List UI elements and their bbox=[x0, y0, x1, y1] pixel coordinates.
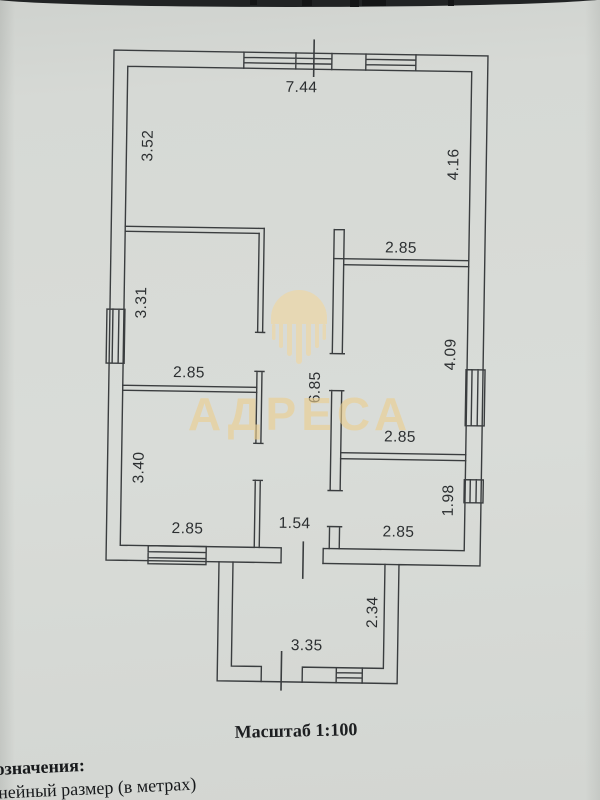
dimension-label: 2.85 bbox=[171, 520, 203, 538]
dimension-label: 4.16 bbox=[445, 148, 463, 180]
dimension-label: 3.35 bbox=[291, 637, 323, 655]
outer-wall-outline bbox=[104, 50, 488, 685]
dimension-label: 3.52 bbox=[139, 130, 157, 162]
dimension-label: 1.98 bbox=[440, 484, 458, 516]
dimension-label: 3.31 bbox=[133, 287, 151, 319]
dimension-label: 2.85 bbox=[173, 364, 205, 382]
partition-right-room-top bbox=[334, 259, 469, 267]
partition-big-room-left bbox=[125, 226, 264, 233]
dimension-label: 2.85 bbox=[384, 428, 416, 446]
floor-plan-drawing bbox=[0, 0, 600, 800]
inner-wall-outline bbox=[120, 66, 472, 565]
dimension-label: 2.85 bbox=[385, 239, 417, 257]
scanned-floor-plan-page: 7.44 3.52 4.16 2.85 3.31 2.85 6.85 4.09 … bbox=[0, 0, 600, 800]
dimension-label: 6.85 bbox=[307, 371, 325, 403]
window-symbol-top-left bbox=[244, 52, 332, 69]
dimension-label: 2.85 bbox=[382, 523, 414, 541]
dimension-label: 2.34 bbox=[364, 596, 382, 628]
porch-inner-walls bbox=[231, 562, 385, 683]
partition-left-rooms bbox=[123, 385, 257, 392]
dimension-tick-marks bbox=[281, 40, 314, 690]
window-symbol-top-right bbox=[366, 54, 416, 71]
dimension-label: 7.44 bbox=[285, 79, 317, 97]
floor-plan: 7.44 3.52 4.16 2.85 3.31 2.85 6.85 4.09 … bbox=[0, 0, 600, 800]
window-symbol-porch bbox=[336, 668, 362, 683]
scale-caption: Масштаб 1:100 bbox=[234, 719, 357, 743]
legend-heading-partial: означения: bbox=[0, 755, 85, 780]
dimension-label: 1.54 bbox=[279, 515, 311, 533]
dimension-label: 3.40 bbox=[130, 452, 148, 484]
partition-right-rooms bbox=[341, 453, 466, 461]
dimension-label: 4.09 bbox=[442, 338, 460, 370]
corridor-right-wall bbox=[327, 230, 346, 549]
house-porch-wall bbox=[219, 562, 399, 565]
